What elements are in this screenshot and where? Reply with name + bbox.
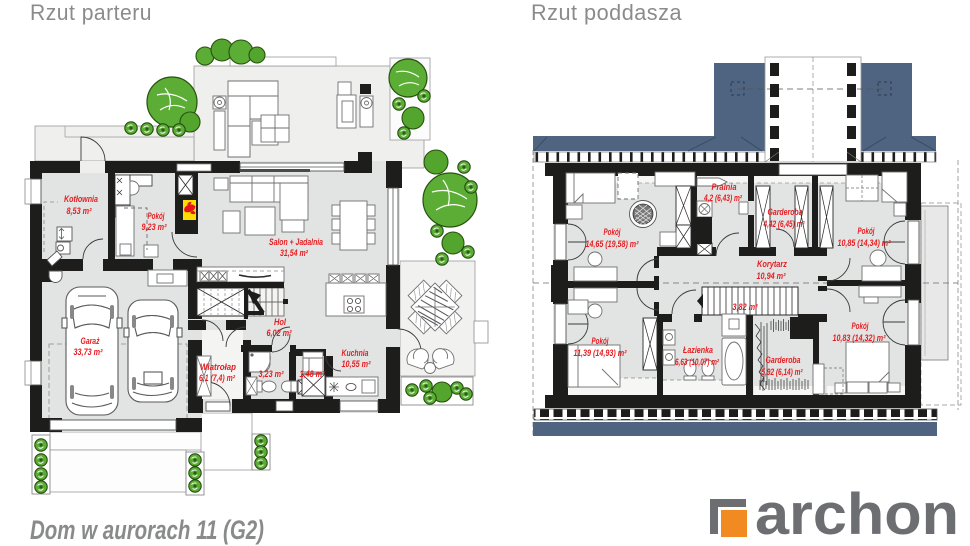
svg-text:Pokój: Pokój [148,211,165,221]
svg-text:Garaż: Garaż [81,336,100,346]
svg-text:4,42 (6,45) m²: 4,42 (6,45) m² [763,219,805,229]
svg-text:1,48 m²: 1,48 m² [300,369,326,379]
svg-text:11,39 (14,93) m²: 11,39 (14,93) m² [574,348,628,358]
svg-text:Rzut poddasza: Rzut poddasza [531,0,682,25]
svg-text:3,82 m²: 3,82 m² [733,302,759,312]
svg-text:5,92 (6,14) m²: 5,92 (6,14) m² [762,367,804,377]
svg-text:Salon + Jadalnia: Salon + Jadalnia [269,237,323,247]
svg-text:10,85 (14,34) m²: 10,85 (14,34) m² [838,238,892,248]
svg-text:Garderoba: Garderoba [766,355,801,365]
svg-text:Pralnia: Pralnia [712,182,737,192]
svg-text:10,83 (14,32) m²: 10,83 (14,32) m² [833,333,887,343]
svg-text:31,54 m²: 31,54 m² [280,248,309,258]
svg-text:Kotłownia: Kotłownia [64,194,98,204]
svg-text:6,02 m²: 6,02 m² [267,328,293,338]
svg-text:Łazienka: Łazienka [682,345,713,355]
svg-text:10,55 m²: 10,55 m² [342,359,372,369]
svg-text:archon: archon [755,482,959,546]
svg-text:4,2 (6,43) m²: 4,2 (6,43) m² [703,193,742,203]
svg-text:Dom w aurorach 11 (G2): Dom w aurorach 11 (G2) [30,515,264,545]
svg-text:Pokój: Pokój [604,227,621,237]
svg-text:10,94 m²: 10,94 m² [757,271,787,281]
svg-text:6,1 (7,4) m²: 6,1 (7,4) m² [199,373,236,383]
svg-text:3,23 m²: 3,23 m² [259,369,285,379]
svg-text:Garderoba: Garderoba [768,207,803,217]
svg-text:Kuchnia: Kuchnia [342,348,369,358]
svg-text:Pokój: Pokój [592,336,609,346]
svg-text:Hol: Hol [274,317,286,327]
svg-text:Pokój: Pokój [858,226,875,236]
svg-text:33,73 m²: 33,73 m² [74,347,104,357]
svg-text:9,23 m²: 9,23 m² [142,222,168,232]
svg-text:14,65 (19,58) m²: 14,65 (19,58) m² [586,239,640,249]
svg-text:Korytarz: Korytarz [757,259,787,269]
svg-text:6,63 (10,07) m²: 6,63 (10,07) m² [675,357,720,367]
svg-text:8,53 m²: 8,53 m² [67,206,93,216]
svg-text:Wiatrołap: Wiatrołap [200,362,236,372]
svg-text:Pokój: Pokój [852,321,869,331]
svg-text:Rzut parteru: Rzut parteru [30,0,152,25]
